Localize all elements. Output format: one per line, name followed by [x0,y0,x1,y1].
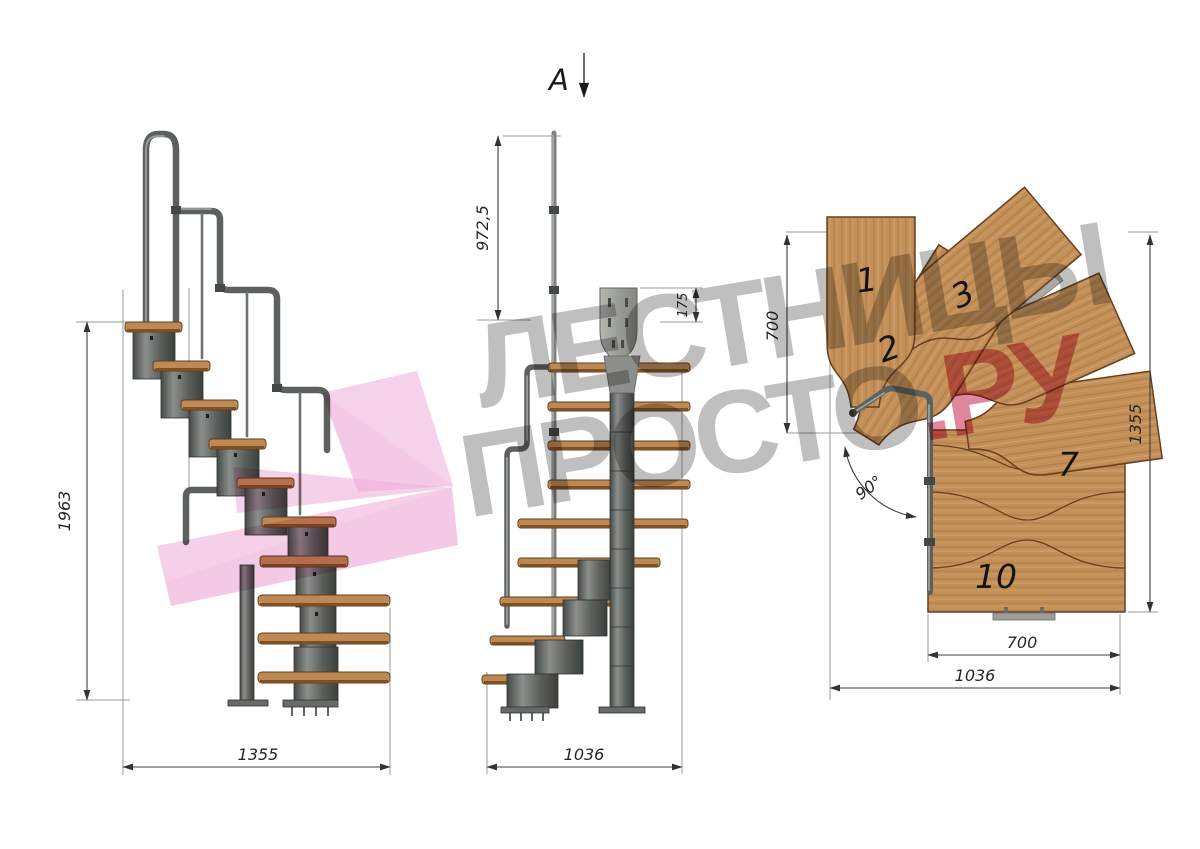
tread-label-7: 7 [1058,445,1079,484]
plan-total-width-dim: 1036 [955,666,996,685]
front-rail-height-dim: 972,5 [473,205,492,251]
watermark-text-accent: .РУ [905,310,1090,467]
tread-label-10: 10 [975,557,1017,596]
side-elevation-view: 1963 1355 [55,134,390,775]
side-height-dim: 1963 [55,491,74,532]
side-length-dim: 1355 [238,745,279,764]
staircase-drawing: 1963 1355 [0,0,1200,849]
section-label: A [547,63,569,97]
plan-length-dim: 1355 [1126,404,1145,445]
plan-base-plate [993,613,1055,620]
handrail-side [146,134,176,328]
plan-width-dim: 700 [1007,633,1038,652]
front-length-dim: 1036 [564,745,605,764]
